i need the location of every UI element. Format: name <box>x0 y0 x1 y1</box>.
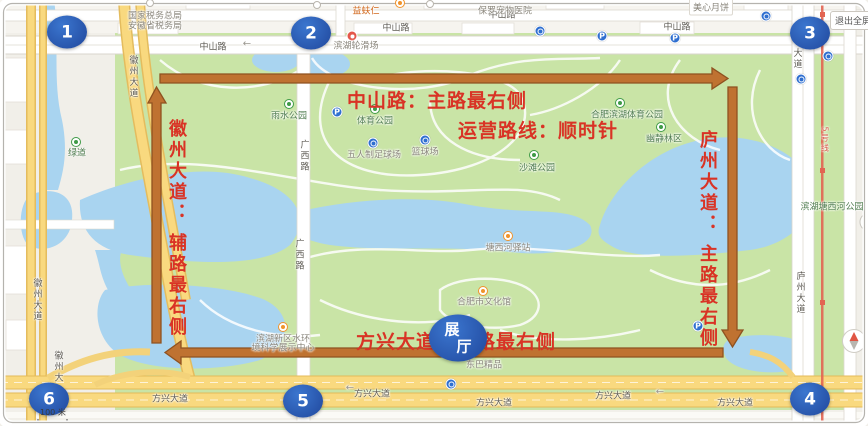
exhibition-hall-marker: 展 厅 <box>429 315 487 362</box>
bldg-label: 滨湖轮滑场 <box>333 39 378 52</box>
park-icon[interactable] <box>615 98 625 108</box>
route-marker-1: 1 <box>47 16 87 49</box>
orange-icon[interactable] <box>503 231 513 241</box>
road-label: 徽州大道 <box>127 55 140 99</box>
transit-icon[interactable] <box>796 74 807 85</box>
bldg-label: 保罗宠物医院 <box>478 4 532 17</box>
bldg-label: 合肥市文化馆 <box>457 295 511 308</box>
bldg-label: 五人制足球场 <box>347 148 401 161</box>
road-label: 徽州大 <box>52 351 65 384</box>
annotation-route-direction: 运营路线：顺时针 <box>458 116 618 143</box>
map-screenshot: 国家税务总局安徽省税务局中山路中山路中山路中山路益蚨仁保罗宠物医院美心月饼滨湖轮… <box>0 0 868 426</box>
dir-label: ← <box>656 387 664 398</box>
parking-icon[interactable]: P <box>332 107 343 118</box>
bldg-label: 东巴精品 <box>466 358 502 371</box>
bldg-label: 安徽省税务局 <box>128 19 182 32</box>
route-marker-3: 3 <box>790 17 830 50</box>
bldg-label: 境科学展示中心 <box>251 341 314 354</box>
dir-label: ← <box>346 383 354 394</box>
bldg-label: 篮球场 <box>411 145 438 158</box>
park-label: 滨湖塘西河公园 <box>800 200 863 213</box>
hall-label-line2: 厅 <box>456 338 471 355</box>
transit-icon[interactable] <box>761 11 772 22</box>
route-marker-2: 2 <box>291 17 331 50</box>
road-label: 庐州大道 <box>794 271 807 315</box>
transit-icon[interactable] <box>446 379 457 390</box>
road-label: 方兴大道 <box>152 392 188 405</box>
park-icon[interactable] <box>529 150 539 160</box>
road-label: 方兴大道 <box>354 387 390 400</box>
orange-label: 益蚨仁 <box>352 4 379 17</box>
road-label: 方兴大道 <box>476 396 512 409</box>
hall-label-line1: 展 <box>444 321 459 338</box>
parking-icon[interactable]: P <box>670 33 681 44</box>
road-label: 大道 <box>791 48 804 70</box>
road-label: 方兴大道 <box>595 389 631 402</box>
road-label: 广西路 <box>298 140 311 173</box>
park-label: 雨水公园 <box>271 109 307 122</box>
exit-fullscreen-button[interactable]: 退出全屏 <box>830 11 868 30</box>
park-label: 沙滩公园 <box>519 161 555 174</box>
bldg-label: 塘西河驿站 <box>485 241 530 254</box>
park-icon[interactable] <box>656 122 666 132</box>
route-marker-4: 4 <box>790 383 830 416</box>
white-icon[interactable] <box>426 0 434 8</box>
park-label: 体育公园 <box>357 114 393 127</box>
transit-icon[interactable] <box>535 26 546 37</box>
road-label: 中山路 <box>199 40 226 53</box>
annotation-huizhou-avenue: 徽州大道： 辅路最右侧 <box>163 119 189 338</box>
orange-icon[interactable] <box>278 322 288 332</box>
white-icon[interactable] <box>313 1 321 9</box>
scale-label: 100 米 <box>40 407 66 418</box>
road-label: 徽州大道 <box>31 278 44 322</box>
road-label: 中山路 <box>663 20 690 33</box>
transit-icon[interactable] <box>823 51 834 62</box>
road-label: 广西路 <box>293 239 306 272</box>
parking-icon[interactable]: P <box>597 31 608 42</box>
park-label: 绿道 <box>68 146 86 159</box>
route-marker-5: 5 <box>283 385 323 418</box>
annotation-luzhou-avenue: 庐州大道： 主路最右侧 <box>694 130 720 349</box>
road-label: 方兴大道 <box>717 396 753 409</box>
park-icon[interactable] <box>284 99 294 109</box>
metro-label: 5号线 <box>820 126 831 153</box>
road-label: 中山路 <box>382 21 409 34</box>
dir-label: ← <box>243 39 251 50</box>
compass-icon[interactable] <box>843 330 866 353</box>
annotation-zhongshan-road: 中山路：主路最右侧 <box>347 86 527 113</box>
bldg-label: 美心月饼 <box>689 0 733 16</box>
park-label: 幽静林区 <box>646 132 682 145</box>
